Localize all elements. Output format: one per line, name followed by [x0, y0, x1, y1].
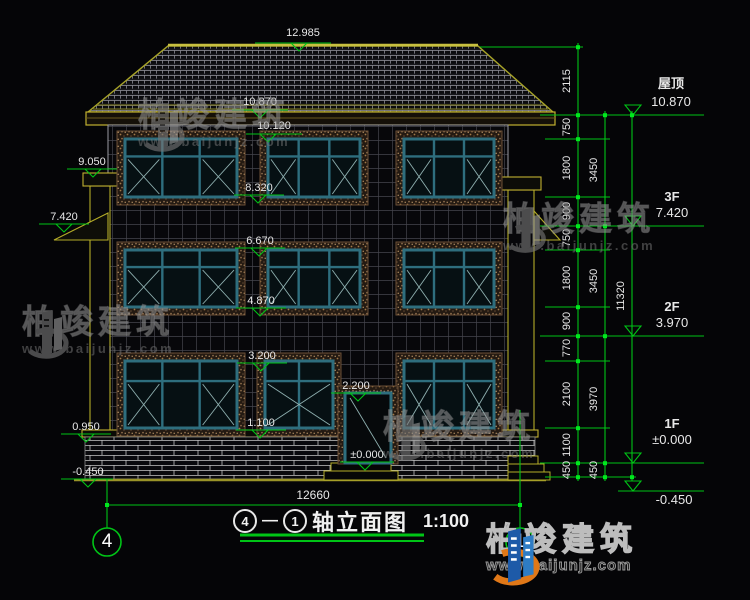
title-text: 轴立面图 — [312, 505, 408, 537]
brand-logo: 柏竣建筑 www.baijunjz.com — [486, 522, 638, 574]
door-step — [324, 471, 398, 480]
building-swoosh-icon — [486, 522, 544, 592]
left-pilaster-cap — [83, 173, 117, 186]
title-axis-end: 1 — [283, 509, 307, 533]
window — [396, 131, 502, 205]
elevation-marker: 12.985 — [277, 27, 329, 39]
watermark: 柏竣建筑 www.baijunjz.com — [138, 98, 290, 149]
elevation-marker: 4.870 — [238, 295, 284, 307]
axis-bubble-4: 4 — [92, 527, 122, 557]
dimension-label: 450 — [561, 461, 573, 479]
elevation-marker: 1.100 — [238, 417, 284, 429]
dimension-label: 2115 — [561, 69, 573, 93]
level-value: ±0.000 — [640, 434, 704, 446]
title-scale: 1:100 — [423, 511, 469, 532]
side-step — [508, 464, 544, 472]
dimension-label: 750 — [561, 118, 573, 136]
side-step — [508, 472, 550, 480]
elevation-marker: 9.050 — [69, 156, 115, 168]
level-label: 2F — [650, 301, 694, 313]
dimension-label: 450 — [588, 461, 600, 479]
overall-dimension: 12660 — [283, 489, 343, 501]
window — [396, 242, 502, 315]
dimension-label: 3970 — [588, 387, 600, 411]
watermark: 柏竣建筑 www.baijunjz.com — [383, 410, 535, 461]
dimension-label: 900 — [561, 312, 573, 330]
window — [117, 353, 245, 436]
watermark-logo-icon — [383, 410, 429, 468]
windows-group — [117, 131, 502, 436]
level-label: 屋顶 — [640, 78, 702, 90]
dimension-label: 1100 — [561, 433, 573, 457]
dimension-label: 1800 — [561, 266, 573, 290]
elevation-marker: 3.200 — [239, 350, 285, 362]
level-value: 3.970 — [644, 317, 700, 329]
elevation-marker: 6.670 — [237, 235, 283, 247]
level-value: -0.450 — [644, 494, 704, 506]
dimension-label: 1800 — [561, 156, 573, 180]
level-label: 3F — [650, 191, 694, 203]
watermark-logo-icon — [22, 305, 72, 365]
title-dash: — — [262, 512, 278, 530]
title-axis-start: 4 — [233, 509, 257, 533]
elevation-marker: 2.200 — [333, 380, 379, 392]
dimension-label: 11320 — [615, 281, 627, 311]
elevation-marker: 7.420 — [41, 211, 87, 223]
elevation-marker: 0.950 — [63, 421, 109, 433]
right-pilaster-cap — [501, 177, 541, 190]
watermark-logo-icon — [138, 98, 188, 158]
cad-elevation-canvas: 12.985 10.870 10.120 8.320 6.670 4.870 3… — [0, 0, 750, 600]
watermark: 柏竣建筑 www.baijunjz.com — [22, 305, 174, 356]
watermark-logo-icon — [503, 202, 549, 260]
elevation-marker: -0.450 — [63, 466, 113, 478]
level-label: 1F — [650, 418, 694, 430]
level-value: 10.870 — [640, 96, 702, 108]
elevation-marker: 8.320 — [236, 182, 282, 194]
drawing-title: 4 — 1 轴立面图 1:100 — [233, 505, 469, 537]
dimension-label: 3450 — [588, 269, 600, 293]
watermark: 柏竣建筑 www.baijunjz.com — [503, 202, 655, 253]
dimension-label: 770 — [561, 339, 573, 357]
dimension-label: 3450 — [588, 158, 600, 182]
dimension-label: 2100 — [561, 382, 573, 406]
